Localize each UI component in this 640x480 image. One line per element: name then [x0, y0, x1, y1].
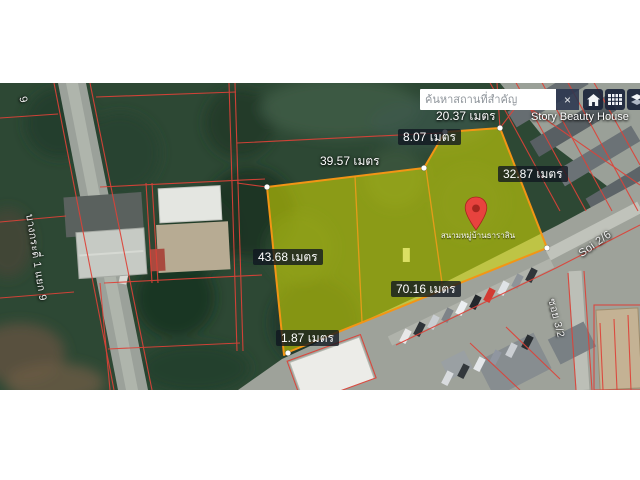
measurement-label: 20.37 เมตร	[436, 109, 496, 123]
measurement-label: 32.87 เมตร	[498, 166, 568, 182]
measurement-label: 70.16 เมตร	[391, 281, 461, 297]
search-bar: ×	[420, 89, 579, 110]
place-label-story-beauty-house: Story Beauty House	[531, 110, 629, 124]
grid-button[interactable]	[605, 89, 625, 110]
home-icon	[587, 94, 600, 106]
app-window: 20.37 เมตร 8.07 เมตร 39.57 เมตร 32.87 เม…	[0, 0, 640, 480]
layers-button[interactable]	[627, 89, 640, 110]
measurement-label: 39.57 เมตร	[320, 154, 380, 168]
grid-icon	[608, 94, 622, 105]
map-viewport[interactable]: 20.37 เมตร 8.07 เมตร 39.57 เมตร 32.87 เม…	[0, 83, 640, 390]
measurement-label: 8.07 เมตร	[398, 129, 461, 145]
layers-icon	[630, 93, 640, 106]
home-button[interactable]	[583, 89, 603, 110]
search-clear-button[interactable]: ×	[556, 89, 579, 110]
pin-place-label: สนามหมู่บ้านธาราสิน	[434, 229, 522, 243]
search-input[interactable]	[420, 89, 556, 110]
close-icon: ×	[564, 93, 571, 107]
measurement-label: 1.87 เมตร	[276, 330, 339, 346]
measurement-label: 43.68 เมตร	[253, 249, 323, 265]
